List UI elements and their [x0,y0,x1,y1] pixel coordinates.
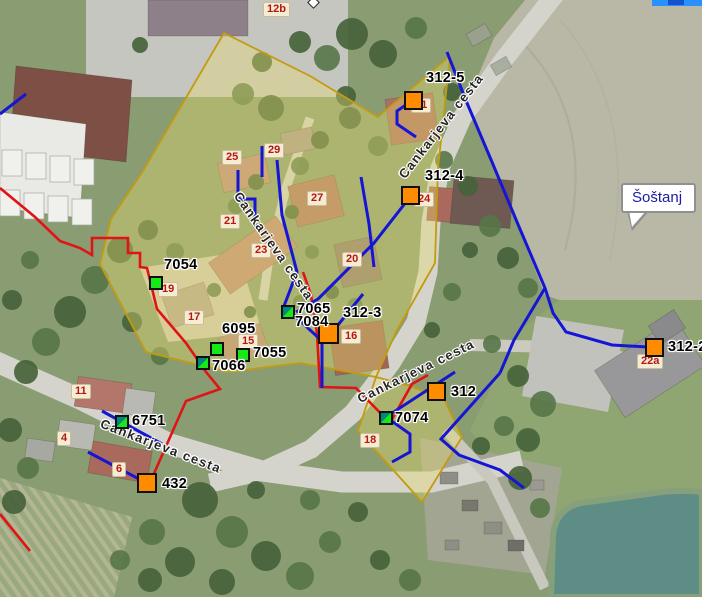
corner-widget[interactable] [652,0,702,6]
house-number-label: 18 [360,433,380,448]
hydrant-marker-312-2[interactable] [645,338,664,357]
valve-label: 7054 [164,257,197,273]
valve-marker-7074[interactable] [379,411,393,425]
valve-label: 7084 [295,314,328,330]
hydrant-marker-432[interactable] [137,473,157,493]
house-number-label: 29 [264,143,284,158]
valve-marker-7066[interactable] [196,356,210,370]
hydrant-label: 312-5 [426,70,465,86]
valve-label: 7066 [212,358,245,374]
valve-marker-6751[interactable] [115,415,129,429]
valve-label: 6095 [222,321,255,337]
hydrant-label: 432 [162,476,187,492]
house-number-label: 16 [341,329,361,344]
hydrant-label: 312-4 [425,168,464,184]
valve-label: 7055 [253,345,286,361]
house-number-label: 27 [307,191,327,206]
house-number-label: 6 [112,462,126,477]
house-number-label: 20 [342,252,362,267]
callout-tail-icon [629,211,646,227]
hydrant-label: 312-3 [343,305,382,321]
valve-label: 7074 [395,410,428,426]
valve-marker-7065-7084[interactable] [281,305,295,319]
hydrant-label: 312-2 [668,339,702,355]
hydrant-marker-312-5[interactable] [404,91,423,110]
valve-marker-6095[interactable] [210,342,224,356]
house-number-label: 11 [71,384,91,399]
pond [551,491,702,597]
hydrant-marker-312-4[interactable] [401,186,420,205]
valve-label: 6751 [132,413,165,429]
house-number-label: 4 [57,431,71,446]
house-number-label: 12b [263,2,290,17]
house-number-label: 21 [220,214,240,229]
hydrant-label: 312 [451,384,476,400]
house-number-label: 25 [222,150,242,165]
hydrant-marker-312[interactable] [427,382,446,401]
place-callout: Šoštanj [621,183,696,213]
map-viewport[interactable]: 312-5 312-4 312-3 312 312-2 432 7054 609… [0,0,702,597]
map-canvas[interactable] [0,0,702,597]
house-number-label: 17 [184,310,204,325]
valve-marker-7054[interactable] [149,276,163,290]
